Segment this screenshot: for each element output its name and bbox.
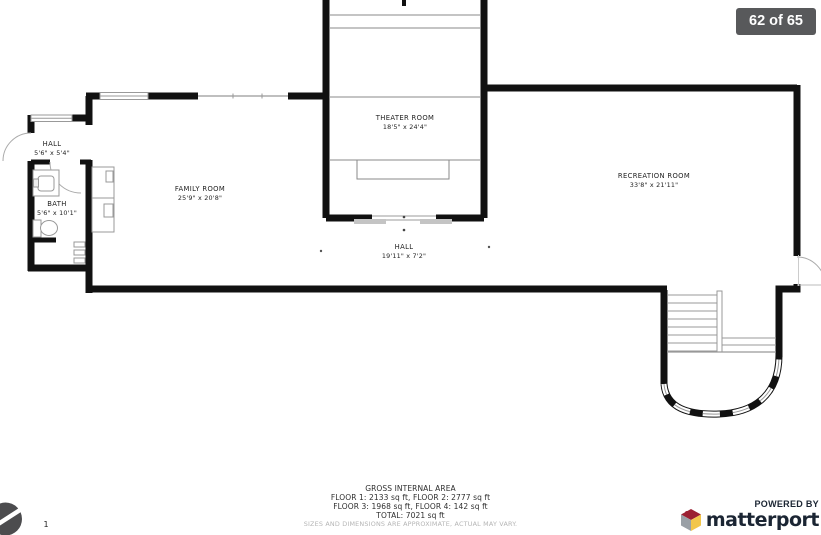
room-label-recreation: RECREATION ROOM 33'8" x 21'11" — [618, 172, 690, 189]
matterport-wordmark: matterport — [706, 511, 819, 530]
svg-text:HALL: HALL — [43, 140, 62, 148]
room-labels: THEATER ROOM 18'5" x 24'4" FAMILY ROOM 2… — [34, 114, 690, 260]
sink-basin — [38, 176, 54, 191]
room-label-bath: BATH 5'6" x 10'1" — [37, 200, 77, 217]
svg-text:RECREATION ROOM: RECREATION ROOM — [618, 172, 690, 180]
svg-text:THEATER ROOM: THEATER ROOM — [375, 114, 435, 122]
svg-text:5'6" x 5'4": 5'6" x 5'4" — [34, 149, 70, 157]
svg-text:HALL: HALL — [395, 243, 414, 251]
room-label-family: FAMILY ROOM 25'9" x 20'8" — [175, 185, 225, 202]
cabinets — [92, 167, 114, 232]
rec-door-arc — [797, 257, 821, 285]
doors — [3, 133, 821, 286]
svg-text:18'5" x 24'4": 18'5" x 24'4" — [383, 123, 427, 131]
stair-railing — [717, 291, 722, 352]
theater-interior-lines — [330, 15, 480, 160]
room-label-hall-corridor: HALL 19'11" x 7'2" — [382, 243, 426, 260]
hall-marker-left — [320, 250, 322, 252]
svg-text:BATH: BATH — [47, 200, 66, 208]
sink-faucet — [34, 179, 39, 187]
svg-text:19'11" x 7'2": 19'11" x 7'2" — [382, 252, 426, 260]
opening-marker — [403, 229, 406, 232]
opening-marker — [403, 216, 406, 219]
staircase — [667, 291, 776, 352]
svg-text:FAMILY ROOM: FAMILY ROOM — [175, 185, 225, 193]
toilet-bowl — [41, 221, 58, 236]
theater-threshold-left — [354, 219, 386, 224]
hall-marker-right — [488, 246, 490, 248]
front-door-arc — [3, 133, 31, 161]
floorplan-drawing: THEATER ROOM 18'5" x 24'4" FAMILY ROOM 2… — [0, 0, 821, 535]
svg-text:25'9" x 20'8": 25'9" x 20'8" — [178, 194, 222, 202]
matterport-branding: POWERED BY matterport — [679, 499, 819, 532]
svg-text:33'8" x 21'11": 33'8" x 21'11" — [630, 181, 679, 189]
walls — [28, 0, 797, 384]
page-counter-badge: 62 of 65 — [736, 8, 816, 35]
room-label-theater: THEATER ROOM 18'5" x 24'4" — [375, 114, 435, 131]
toilet-tank — [33, 220, 41, 237]
matterport-cube-icon — [679, 508, 703, 532]
theater-stage-platform — [357, 160, 449, 179]
area-summary-title: GROSS INTERNAL AREA — [0, 484, 821, 493]
bay-curved-wall — [664, 355, 779, 414]
theater-top-tick — [402, 0, 406, 6]
room-label-hall-small: HALL 5'6" x 5'4" — [34, 140, 70, 157]
floorplan-viewer: THEATER ROOM 18'5" x 24'4" FAMILY ROOM 2… — [0, 0, 821, 535]
closet-shelves — [74, 242, 85, 263]
theater-threshold-right — [420, 219, 452, 224]
svg-text:5'6" x 10'1": 5'6" x 10'1" — [37, 209, 77, 217]
